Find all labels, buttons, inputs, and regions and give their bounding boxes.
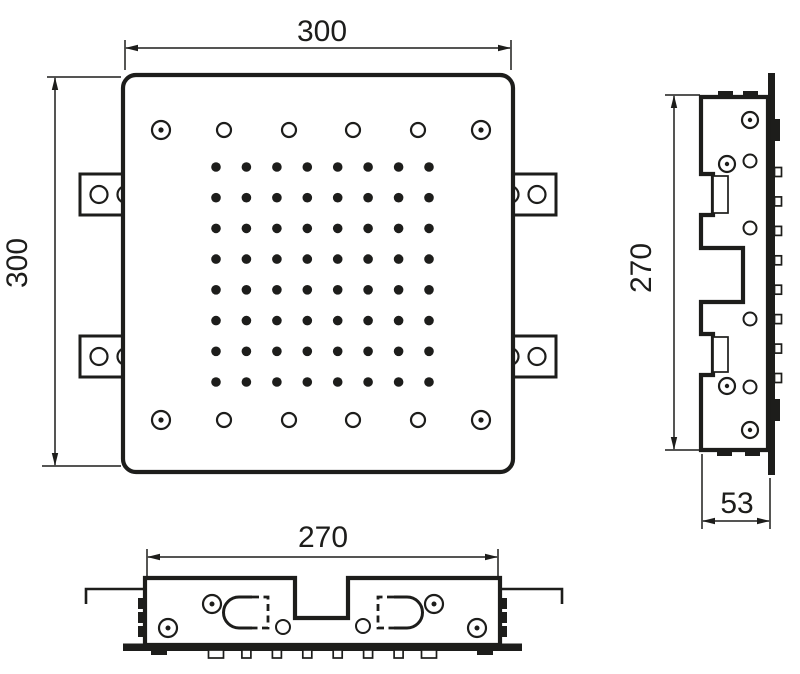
nozzle-nub — [364, 650, 373, 658]
nozzle-nub — [775, 256, 782, 265]
nozzle-hole — [211, 316, 221, 326]
pin-hole — [744, 155, 757, 168]
nozzle-hole — [211, 224, 221, 234]
nozzle-hole — [333, 162, 343, 172]
nozzle-hole — [333, 316, 343, 326]
nozzle-hole — [424, 224, 434, 234]
nozzle-nub — [775, 168, 782, 177]
nozzle-hole — [394, 224, 404, 234]
plate-foot — [151, 651, 167, 655]
arrowhead — [671, 95, 677, 108]
bottom-view — [86, 578, 562, 658]
nozzle-hole — [242, 316, 252, 326]
housing-nub — [743, 91, 758, 97]
tab-hole — [91, 348, 108, 365]
screw-center-dot — [748, 118, 752, 122]
nozzle-hole — [303, 316, 313, 326]
arrowhead — [498, 45, 511, 51]
front-height-dimension: 300 — [1, 77, 121, 466]
pin-hole — [744, 381, 757, 394]
plate-foot — [477, 651, 493, 655]
nozzle-nub — [242, 650, 251, 658]
nozzle-nub — [775, 285, 782, 294]
arrowhead — [702, 518, 715, 524]
rim-hole — [217, 413, 231, 427]
nozzle-hole — [272, 162, 282, 172]
arrowhead — [125, 45, 138, 51]
arrowhead — [485, 554, 498, 560]
nozzle-hole — [242, 285, 252, 295]
nozzle-nub — [303, 650, 312, 658]
nozzle-hole — [272, 316, 282, 326]
nozzle-hole — [333, 254, 343, 264]
housing-nub — [718, 91, 733, 97]
pin-hole — [744, 313, 757, 326]
pin-hole — [356, 619, 370, 633]
ceiling-bracket — [501, 589, 562, 604]
nozzle-hole — [394, 254, 404, 264]
dimension-label: 300 — [1, 238, 34, 288]
rim-hole — [411, 123, 425, 137]
nozzle-hole — [242, 347, 252, 357]
nozzle-hole — [272, 347, 282, 357]
nozzle-hole — [333, 193, 343, 203]
nozzle-hole — [424, 347, 434, 357]
dimension-label: 270 — [625, 243, 658, 293]
arrowhead — [757, 518, 770, 524]
nozzle-hole — [303, 224, 313, 234]
dimension-label: 53 — [720, 487, 753, 520]
rim-hole — [346, 413, 360, 427]
screw-center-dot — [158, 127, 163, 132]
nozzle-hole — [333, 224, 343, 234]
nozzle-hole — [394, 193, 404, 203]
nozzle-hole — [424, 316, 434, 326]
nozzle-hole — [363, 224, 373, 234]
rim-hole — [411, 413, 425, 427]
nozzle-hole — [394, 162, 404, 172]
screw-center-dot — [725, 384, 729, 388]
screw-center-dot — [725, 162, 729, 166]
rim-hole — [217, 123, 231, 137]
side-view — [701, 73, 782, 475]
screw-center-dot — [158, 417, 163, 422]
arrowhead — [147, 554, 160, 560]
nozzle-hole — [272, 377, 282, 387]
nozzle-hole — [363, 162, 373, 172]
nozzle-nub — [272, 650, 281, 658]
nozzle-nub — [775, 374, 782, 383]
front-view — [80, 75, 556, 472]
nozzle-hole — [242, 377, 252, 387]
nozzle-hole — [394, 347, 404, 357]
nozzle-nub — [775, 197, 782, 206]
nozzle-hole — [363, 347, 373, 357]
housing-nub — [745, 450, 760, 456]
drawing-canvas: 300 300 — [0, 0, 800, 674]
nozzle-nub — [394, 650, 403, 658]
nozzle-hole — [424, 193, 434, 203]
nozzle-hole — [303, 377, 313, 387]
nozzle-hole — [394, 377, 404, 387]
technical-drawing: 300 300 — [0, 0, 800, 674]
bracket-slot — [713, 176, 728, 213]
nozzle-hole — [242, 254, 252, 264]
nozzle-hole — [333, 347, 343, 357]
screw-center-dot — [478, 417, 483, 422]
bottom-nozzle-nubs — [209, 650, 437, 658]
plate-clip — [773, 119, 780, 141]
nozzle-hole — [242, 224, 252, 234]
bottom-width-dimension: 270 — [147, 521, 498, 576]
nozzle-hole — [363, 377, 373, 387]
tab-hole — [91, 186, 108, 203]
nozzle-nub — [333, 650, 342, 658]
screw-center-dot — [210, 602, 215, 607]
screw-center-dot — [475, 626, 480, 631]
screw-center-dot — [478, 127, 483, 132]
nozzle-hole — [424, 254, 434, 264]
rim-hole — [346, 123, 360, 137]
nozzle-nub — [775, 315, 782, 324]
nozzle-nub — [422, 650, 437, 658]
nozzle-hole — [424, 285, 434, 295]
arrowhead — [52, 77, 58, 90]
side-nozzle-nubs — [775, 168, 782, 383]
nozzle-hole — [424, 162, 434, 172]
nozzle-hole — [211, 285, 221, 295]
pin-hole — [744, 222, 757, 235]
housing-nub — [717, 450, 732, 456]
nozzle-hole — [272, 254, 282, 264]
side-depth-dimension: 53 — [702, 454, 770, 529]
nozzle-hole — [303, 254, 313, 264]
nozzle-hole — [211, 254, 221, 264]
arrowhead — [52, 453, 58, 466]
ceiling-bracket — [86, 589, 144, 604]
dimension-label: 300 — [297, 15, 347, 48]
nozzle-nub — [775, 344, 782, 353]
nozzle-hole — [211, 347, 221, 357]
nozzle-hole — [303, 193, 313, 203]
nozzle-hole — [394, 316, 404, 326]
nozzle-hole — [272, 285, 282, 295]
nozzle-hole — [333, 377, 343, 387]
nozzle-hole — [363, 254, 373, 264]
nozzle-hole — [211, 193, 221, 203]
housing-body — [701, 97, 768, 450]
dimension-label: 270 — [298, 521, 348, 554]
nozzle-hole — [303, 162, 313, 172]
nozzle-hole — [363, 193, 373, 203]
housing-body — [145, 578, 500, 645]
side-height-dimension: 270 — [625, 95, 700, 450]
panel-face — [123, 75, 513, 472]
rim-hole — [282, 413, 296, 427]
screw-center-dot — [432, 602, 437, 607]
nozzle-hole — [363, 316, 373, 326]
nozzle-hole — [242, 193, 252, 203]
screw-center-dot — [748, 428, 752, 432]
nozzle-hole — [424, 377, 434, 387]
tab-hole — [529, 186, 546, 203]
tab-hole — [529, 348, 546, 365]
nozzle-hole — [303, 347, 313, 357]
front-width-dimension: 300 — [125, 15, 511, 70]
nozzle-hole — [211, 162, 221, 172]
bracket-slot — [713, 337, 728, 372]
pin-hole — [276, 620, 290, 634]
nozzle-hole — [333, 285, 343, 295]
nozzle-hole — [394, 285, 404, 295]
nozzle-hole — [363, 285, 373, 295]
nozzle-hole — [242, 162, 252, 172]
face-plate-edge — [123, 644, 522, 652]
screw-center-dot — [166, 626, 171, 631]
plate-clip — [773, 399, 780, 421]
nozzle-nub — [209, 650, 224, 658]
rim-hole — [282, 123, 296, 137]
nozzle-hole — [272, 224, 282, 234]
arrowhead — [671, 437, 677, 450]
nozzle-hole — [272, 193, 282, 203]
nozzle-hole — [211, 377, 221, 387]
nozzle-nub — [775, 226, 782, 235]
nozzle-hole — [303, 285, 313, 295]
